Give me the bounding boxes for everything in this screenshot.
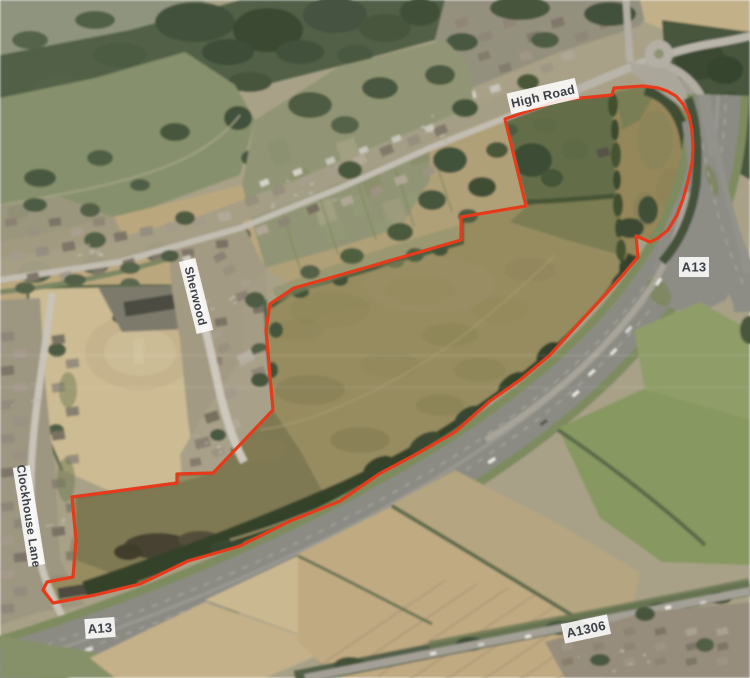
svg-text:A13: A13	[682, 260, 707, 275]
svg-text:A13: A13	[87, 620, 113, 637]
